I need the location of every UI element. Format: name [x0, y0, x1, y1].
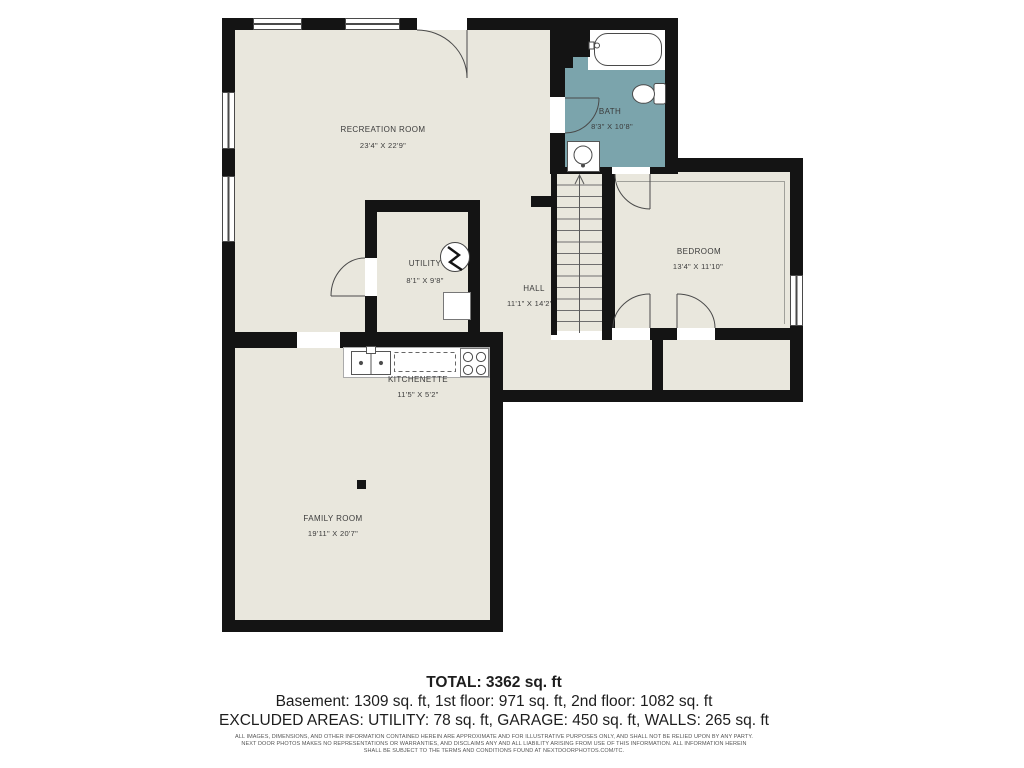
disclaimer-text: ALL IMAGES, DIMENSIONS, AND OTHER INFORM… [0, 734, 988, 755]
excluded-areas-text: EXCLUDED AREAS: UTILITY: 78 sq. ft, GARA… [0, 711, 988, 730]
wall-utility-left-b [365, 296, 377, 332]
wall-bath-divider-bottom [550, 133, 565, 170]
wall-family-bottom [222, 620, 503, 632]
wall-bedroom-top [665, 158, 803, 172]
wall-bedroom-left [602, 167, 615, 340]
recreation-room-label: RECREATION ROOM [341, 125, 426, 134]
disclaimer-line-3: SHALL BE SUBJECT TO THE TERMS AND CONDIT… [0, 748, 988, 755]
wall-bedroom-bottom-a [602, 328, 612, 340]
below-bedroom-floor [612, 340, 652, 390]
total-area-text: TOTAL: 3362 sq. ft [0, 673, 988, 692]
disclaimer-line-1: ALL IMAGES, DIMENSIONS, AND OTHER INFORM… [0, 734, 988, 741]
bedroom-door-left-opening [612, 328, 650, 340]
floor-areas-text: Basement: 1309 sq. ft, 1st floor: 971 sq… [0, 692, 988, 711]
stairs-open-edge [557, 331, 602, 335]
area-summary: TOTAL: 3362 sq. ft Basement: 1309 sq. ft… [0, 673, 988, 755]
wall-bottom-right [490, 390, 803, 402]
bath-dims: 8'3" X 10'8" [591, 122, 633, 131]
kitchenette-label: KITCHENETTE [388, 375, 448, 384]
wall-band-left [222, 332, 297, 348]
wall-band-right [340, 332, 503, 348]
kitchenette-dims: 11'5" X 5'2" [397, 390, 438, 399]
wall-bedroom-right-top [790, 158, 803, 275]
wall-closet-divider [652, 340, 663, 392]
rec-window-left-2 [222, 176, 235, 242]
bedroom-label: BEDROOM [677, 247, 721, 256]
bedroom-window [790, 275, 803, 326]
rec-window-left-1 [222, 92, 235, 149]
family-room-label: FAMILY ROOM [303, 514, 362, 523]
basement-floor-plan: RECREATION ROOM 23'4" X 22'9" BATH 8'3" … [0, 0, 1024, 768]
wall-utility-top [365, 200, 480, 212]
utility-label: UTILITY [409, 259, 442, 268]
wall-bath-right [665, 18, 678, 172]
hall-label: HALL [523, 284, 545, 293]
tub-alcove [588, 30, 665, 70]
kitchen-counter [343, 347, 490, 378]
disclaimer-line-2: NEXT DOOR PHOTOS MAKES NO REPRESENTATION… [0, 741, 988, 748]
patio-door-opening [417, 18, 467, 30]
rec-family-opening [297, 332, 340, 348]
closet-floor [663, 337, 790, 392]
staircase [557, 173, 602, 333]
rec-window-top-2 [345, 18, 400, 30]
bath-bedroom-door-opening [612, 167, 650, 174]
wall-hall-stub [531, 196, 551, 207]
family-room-dims: 19'11" X 20'7" [308, 529, 358, 538]
wall-utility-left-a [365, 212, 377, 258]
utility-door-opening [365, 258, 377, 296]
utility-appliance-square [443, 292, 471, 320]
bedroom-dims: 13'4" X 11'10" [673, 262, 723, 271]
hall-dims: 11'1" X 14'2" [507, 299, 553, 308]
support-post [357, 480, 366, 489]
recreation-room-dims: 23'4" X 22'9" [360, 141, 406, 150]
wall-stairs-left [551, 170, 557, 335]
bath-door-opening [550, 97, 565, 133]
bath-label: BATH [599, 107, 621, 116]
wall-bath-chase-b [560, 30, 573, 68]
wall-bedroom-bottom-b [650, 328, 677, 340]
wall-bedroom-bottom-c [715, 328, 803, 340]
bedroom-door-right-opening [677, 328, 715, 340]
rec-window-top-1 [253, 18, 302, 30]
wall-family-right [490, 332, 503, 632]
utility-dims: 8'1" X 9'8" [406, 276, 443, 285]
bath-sink [567, 141, 600, 172]
